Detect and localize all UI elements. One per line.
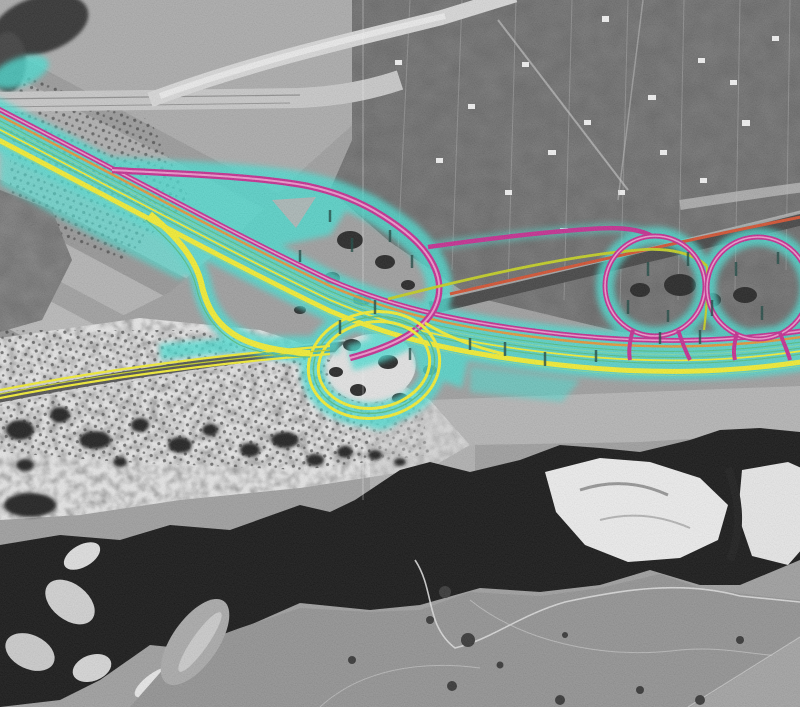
tree-blob xyxy=(306,454,324,466)
tree-blob xyxy=(375,255,395,269)
bush xyxy=(461,633,475,647)
tree-blob xyxy=(337,231,363,249)
tree-blob xyxy=(337,446,353,458)
house xyxy=(548,150,556,155)
bush xyxy=(447,681,457,691)
tree-blob xyxy=(733,287,757,303)
house xyxy=(730,80,737,85)
aerial-map-svg xyxy=(0,0,800,707)
bush xyxy=(695,695,705,705)
house xyxy=(395,60,402,65)
house xyxy=(660,150,667,155)
bush xyxy=(555,695,565,705)
bush xyxy=(497,662,504,669)
tree-blob xyxy=(630,283,650,297)
house xyxy=(468,104,475,109)
house xyxy=(584,120,591,125)
house xyxy=(742,120,750,126)
house xyxy=(700,178,707,183)
aerial-map-view xyxy=(0,0,800,707)
house xyxy=(648,95,656,100)
house xyxy=(505,190,512,195)
house xyxy=(772,36,779,41)
tree-blob xyxy=(329,367,343,377)
tree-blob xyxy=(4,493,56,517)
tree-blob xyxy=(401,280,415,290)
tree-blob xyxy=(271,432,299,448)
bush xyxy=(348,656,356,664)
tree-blob xyxy=(131,418,149,432)
tree-blob xyxy=(202,424,218,436)
tree-blob xyxy=(16,459,34,471)
house xyxy=(522,62,529,67)
tree-blob xyxy=(664,274,696,296)
tree-blob xyxy=(79,431,111,449)
bush xyxy=(562,632,568,638)
bush xyxy=(439,586,451,598)
house xyxy=(436,158,443,163)
tree-blob xyxy=(168,437,192,453)
house xyxy=(698,58,705,63)
bush xyxy=(426,616,434,624)
bush xyxy=(736,636,744,644)
tree-blob xyxy=(368,450,382,460)
tree-blob xyxy=(6,420,34,440)
tree-blob xyxy=(394,458,406,466)
tree-blob xyxy=(50,407,70,423)
tree-blob xyxy=(113,457,127,467)
tree-blob xyxy=(240,443,260,457)
house xyxy=(602,16,609,22)
bush xyxy=(636,686,644,694)
